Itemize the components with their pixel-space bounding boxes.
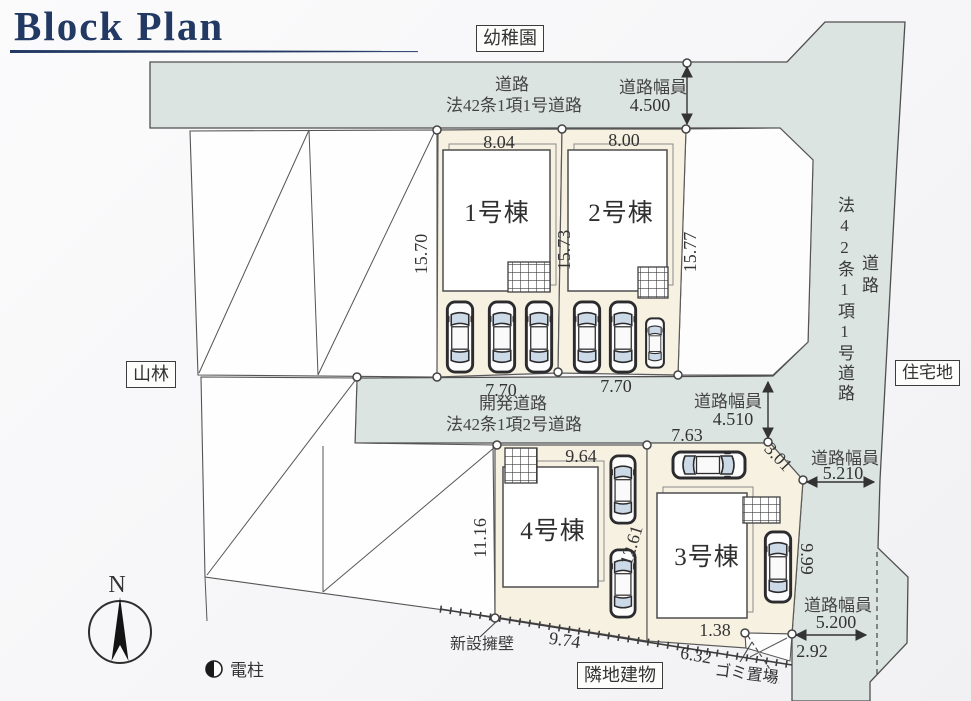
car xyxy=(573,302,601,372)
compass-needle-icon xyxy=(112,597,129,661)
dim-lot4-left: 11.16 xyxy=(470,518,490,558)
residential-label: 住宅地 xyxy=(895,360,960,386)
dim-lot1-top: 8.04 xyxy=(483,132,515,152)
utility-pole-legend: 電柱 xyxy=(206,661,264,680)
dim-lot12-mid: 15.73 xyxy=(554,230,574,271)
building-3-label: 3号棟 xyxy=(674,543,740,571)
car xyxy=(610,456,637,523)
block-plan-page: N 電柱 道路 法42条1項1号道路 道路幅員 4.500 開発道路 法42条1… xyxy=(0,0,971,701)
kindergarten-label: 幼稚園 xyxy=(476,25,544,52)
utility-pole-label: 電柱 xyxy=(230,661,264,680)
building-4-label: 4号棟 xyxy=(520,517,586,545)
forest-label: 山林 xyxy=(126,361,176,388)
compass-north-label: N xyxy=(108,572,125,598)
compass: N xyxy=(89,572,151,663)
hatch-lot2 xyxy=(638,267,668,298)
dim-lot3-right: 9.99 xyxy=(797,543,817,575)
dim-lot1-left: 15.70 xyxy=(411,234,431,275)
dim-road-corner: 2.92 xyxy=(796,641,828,661)
road-top-name: 道路 xyxy=(495,75,529,94)
road-right-width-lower-value: 5.200 xyxy=(816,612,857,632)
site-plan-drawing: N 電柱 道路 法42条1項1号道路 道路幅員 4.500 開発道路 法42条1… xyxy=(0,0,971,701)
page-title: Block Plan xyxy=(14,2,224,50)
dim-lot3-bottom: 6.32 xyxy=(679,643,713,668)
road-mid-width-value: 4.510 xyxy=(713,409,754,429)
road-top-law: 法42条1項1号道路 xyxy=(446,96,582,115)
road-mid-law: 法42条1項2号道路 xyxy=(446,415,582,434)
dim-lot2-bottom: 7.70 xyxy=(600,376,632,396)
hatch-lot3 xyxy=(743,497,780,523)
dim-lot3-top: 7.63 xyxy=(671,425,703,445)
car xyxy=(609,302,637,372)
garbage-label: ゴミ置場 xyxy=(714,660,780,687)
dim-lot2-right: 15.77 xyxy=(680,232,700,273)
dim-lot4-top: 9.64 xyxy=(565,446,597,466)
dim-wall: 9.74 xyxy=(548,628,582,652)
road-right-width-upper-value: 5.210 xyxy=(823,463,864,483)
hatch-lot1 xyxy=(508,262,550,292)
hatch-lot4 xyxy=(505,448,537,483)
road-right-name-label: 道路 xyxy=(856,254,881,298)
building-1-label: 1号棟 xyxy=(464,199,530,227)
neighbor-building-label: 隣地建物 xyxy=(577,662,663,689)
car xyxy=(525,302,553,372)
car xyxy=(764,532,792,602)
car xyxy=(446,302,474,372)
dim-lot3-step: 1.38 xyxy=(699,620,731,640)
dim-lot1-bottom: 7.70 xyxy=(485,380,517,400)
car xyxy=(488,302,516,372)
new-wall-label: 新設擁壁 xyxy=(450,630,514,654)
car-horizontal xyxy=(673,451,745,480)
road-right-law-label: 法42条1項1号道路 xyxy=(832,196,857,404)
road-top-width-value: 4.500 xyxy=(630,95,671,115)
car-small xyxy=(645,318,665,367)
dim-lot2-top: 8.00 xyxy=(608,130,640,150)
building-2-label: 2号棟 xyxy=(588,199,654,227)
